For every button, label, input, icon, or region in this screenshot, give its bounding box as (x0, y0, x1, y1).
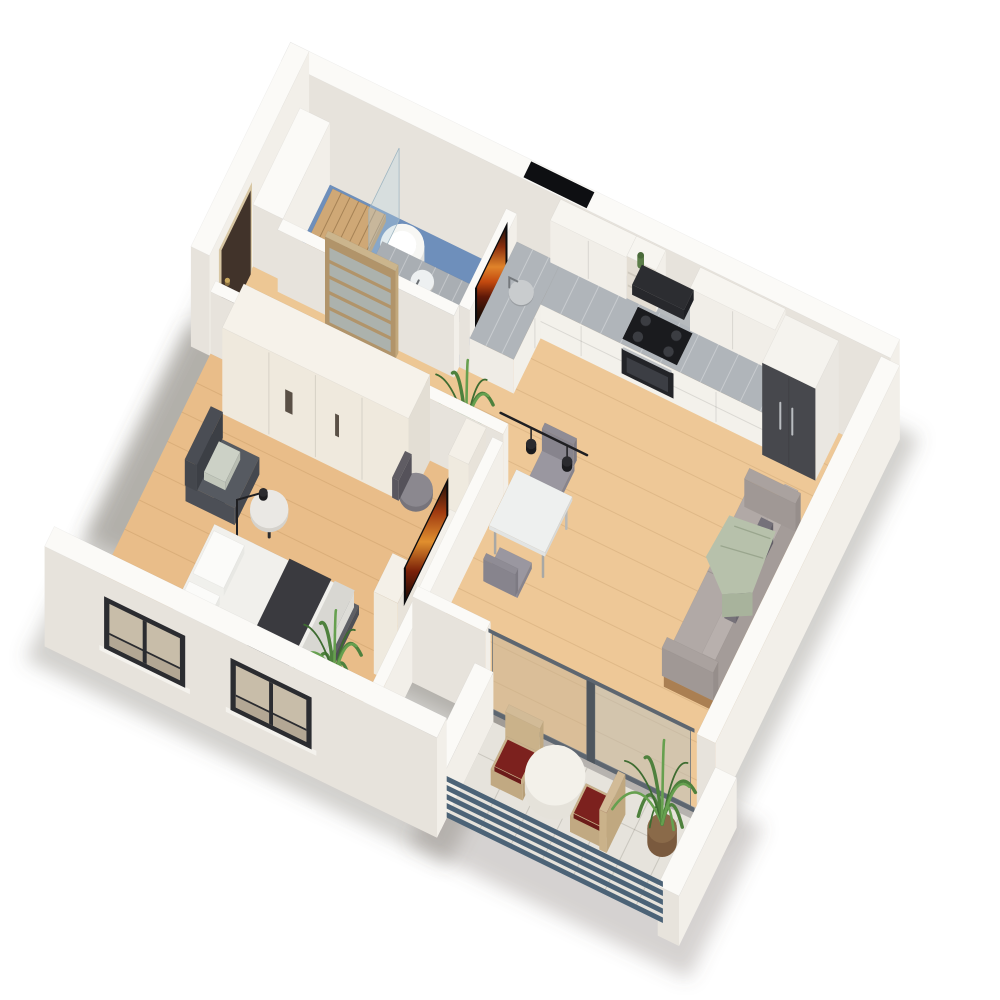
burner (641, 316, 651, 327)
burner (633, 332, 643, 343)
side-table (250, 490, 288, 532)
wardrobe-handle (285, 389, 292, 415)
sofa-blanket-drape (722, 593, 752, 618)
kitchen-sink (509, 280, 534, 307)
floor-plan-canvas (0, 0, 1000, 1000)
door-handle (225, 278, 230, 286)
slider-mullion (587, 676, 595, 764)
floor-lamp-shade (259, 488, 268, 501)
pendant-lamp (526, 439, 536, 455)
burner (663, 346, 673, 357)
fridge (762, 315, 839, 481)
burner (671, 330, 681, 341)
apartment-scene (25, 42, 920, 979)
wardrobe-handle (335, 414, 339, 438)
pendant-lamp (562, 456, 572, 472)
floor-plan-3d-render (0, 0, 1000, 1000)
